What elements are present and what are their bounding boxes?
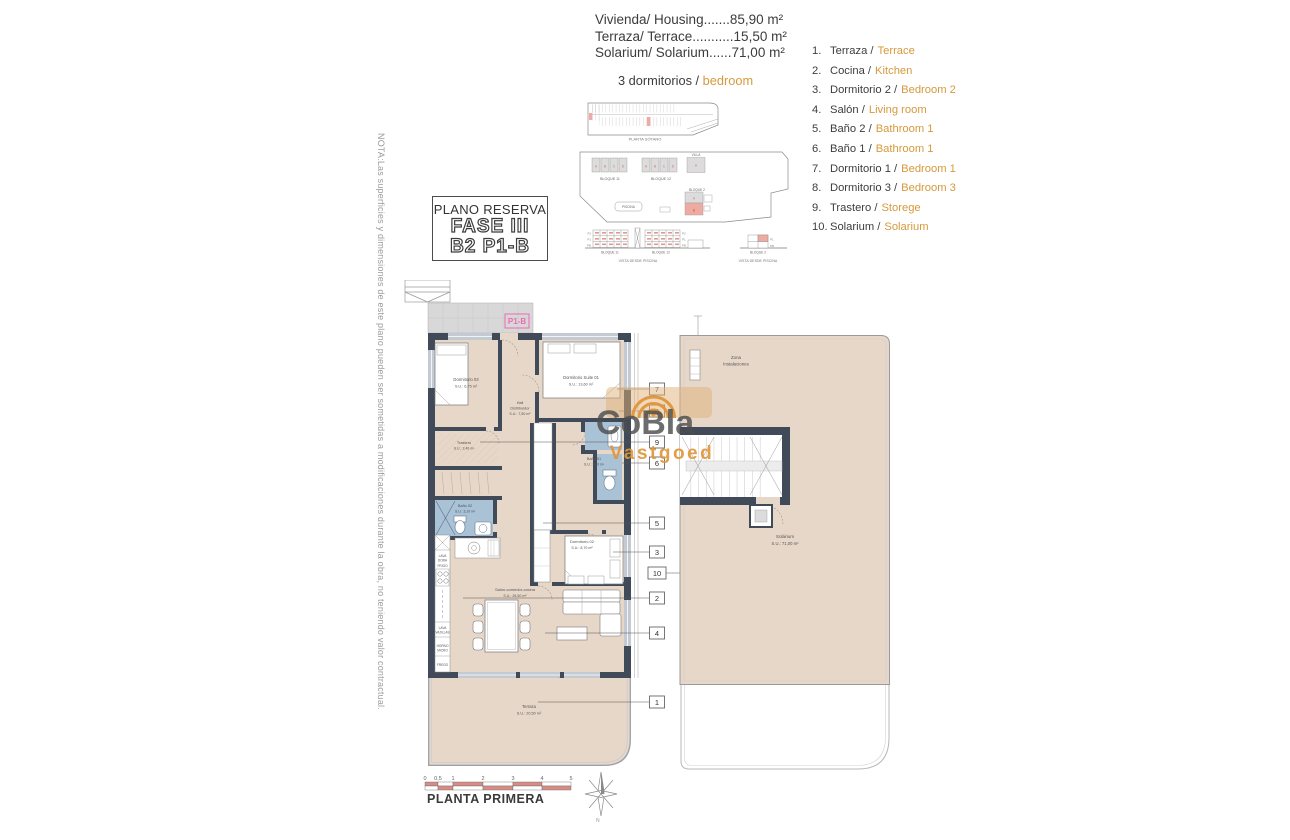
room-dormitorio-02: Dormitorio 02 S.U.: 8,70 m² [565, 536, 623, 584]
kitchen-label: MICRO [437, 649, 448, 653]
stair-core [534, 423, 552, 582]
bedrooms-line: 3 dormitorios / bedroom [618, 73, 753, 88]
area-line-terraza: Terraza/ Terrace...........15,50 m² [595, 29, 787, 46]
floor-label: PB [682, 244, 686, 248]
bloque11-elevation [593, 230, 628, 248]
callout-10: 10 [653, 569, 661, 578]
dorm2-area: S.U.: 8,70 m² [571, 546, 593, 550]
bloque2-elevation: P1 PB BLOQUE 2 VISTA DESDE PISCINA [739, 235, 787, 263]
main-floorplan: P1-B [398, 280, 898, 780]
kitchen-label: HORNO [437, 644, 449, 648]
bloque12-label: BLOQUE 12 [651, 177, 671, 181]
site-diagrams: PLANTA SÓTANO A B C D BLOQUE 11 A [575, 92, 795, 272]
bloque2-label: BLOQUE 2 [689, 188, 705, 192]
bloque12-elevation [645, 230, 680, 248]
solarium-plan: Zona Instalaciones [680, 316, 890, 769]
compass-north-label: N [596, 818, 600, 824]
vista-caption: VISTA DESDE PISCINA [619, 259, 658, 263]
hall-line1: Hall [517, 401, 524, 405]
scale-tick: 0,5 [434, 776, 442, 782]
stair-outline [405, 280, 450, 302]
solarium-area: S.U.: 71,00 m² [772, 541, 800, 546]
callout-3: 3 [655, 548, 659, 557]
floor-label: P1 [770, 238, 774, 242]
villa-label: VILLA [692, 153, 702, 157]
floor-label: PB [587, 244, 591, 248]
piscina-label: PISCINA [622, 205, 636, 209]
scale-tick: 1 [451, 776, 454, 782]
watermark-brand: CoBla [585, 404, 705, 443]
lower-terrace-outline [681, 685, 889, 769]
callout-4: 4 [655, 629, 659, 638]
callout-5: 5 [655, 519, 659, 528]
scale-tick: 2 [481, 776, 484, 782]
floor-label: P1 [682, 238, 686, 242]
floor-label: PB [770, 244, 774, 248]
vista-caption: VISTA DESDE PISCINA [739, 259, 778, 263]
bloque11-caption: BLOQUE 11 [601, 251, 619, 255]
floor-label: P2 [682, 232, 686, 236]
facade-lines [635, 333, 639, 678]
room-bano-02: Baño 02 S.U.: 3,10 m² [435, 500, 493, 536]
suite-area: S.U.: 13,60 m² [569, 383, 594, 387]
plan-phase: FASE III [433, 217, 547, 237]
scale-tick: 5 [569, 776, 572, 782]
bloque12-caption: BLOQUE 12 [652, 251, 670, 255]
bano2-area: S.U.: 3,10 m² [455, 510, 476, 514]
bedrooms-en: bedroom [703, 73, 754, 88]
disclaimer-note: NOTA:Las superficies y dimensiones de es… [376, 133, 386, 710]
watermark-sub: Vastgoed [592, 443, 732, 465]
floor-plan-sheet: Vivienda/ Housing.......85,90 m² Terraza… [0, 0, 1290, 840]
title-block: PLANO RESERVA FASE III B2 P1-B [432, 196, 548, 261]
compass-rose: N [581, 770, 623, 824]
area-line-vivienda: Vivienda/ Housing.......85,90 m² [595, 12, 787, 29]
zona-line1: Zona [731, 355, 742, 360]
dorm2-name: Dormitorio 02 [570, 539, 595, 544]
legend-item-7: 7.Dormitorio 1 /Bedroom 1 [812, 164, 1022, 175]
plan-unit: B2 P1-B [433, 237, 547, 257]
kitchen-label: FRIGO [437, 564, 448, 568]
elevation-diagrams: P2 P1 PB P2 P1 PB BLOQUE 11 BLOQUE 12 VI… [585, 228, 787, 263]
terraza-name: Terraza [522, 704, 537, 709]
area-summary: Vivienda/ Housing.......85,90 m² Terraza… [595, 12, 787, 62]
kitchen-label: FREGO [437, 663, 449, 667]
legend-item-4: 4.Salón /Living room [812, 105, 1022, 116]
room-legend: 1.Terraza /Terrace 2.Cocina /Kitchen 3.D… [812, 46, 1022, 242]
salon-area: S.U.: 26,50 m² [503, 594, 527, 598]
basement-caption: PLANTA SÓTANO [629, 137, 662, 142]
legend-item-9: 9.Trastero /Storege [812, 203, 1022, 214]
siteplan-diagram: A B C D BLOQUE 11 A B C D BLOQUE 12 VILL… [580, 152, 788, 222]
legend-item-5: 5.Baño 2 /Bathroom 1 [812, 124, 1022, 135]
callout-2: 2 [655, 594, 659, 603]
kitchen-label: LAVA [439, 554, 448, 558]
salon-name: Salón-comedor-cocina [495, 587, 536, 592]
trastero-name: Trastero [457, 440, 471, 445]
hall-area: S.U.: 7,50 m² [509, 412, 531, 416]
kitchen-label: LAVA [439, 626, 448, 630]
bano2-name: Baño 02 [458, 504, 472, 508]
zona-line2: Instalaciones [723, 362, 749, 367]
kitchen-label: VAJILLAS [435, 631, 449, 635]
floor-label: P2 [587, 232, 591, 236]
unit-letter: B [693, 209, 695, 213]
legend-item-3: 3.Dormitorio 2 /Bedroom 2 [812, 85, 1022, 96]
legend-item-8: 8.Dormitorio 3 /Bedroom 3 [812, 183, 1022, 194]
plan-caption: PLANTA PRIMERA [427, 792, 544, 806]
room-terraza: Terraza S.U.: 20,50 m² [428, 678, 631, 766]
terraza-area: S.U.: 20,50 m² [517, 712, 542, 716]
dorm3-name: Dormitorio 03 [453, 377, 479, 382]
solarium-name: Solárium [776, 534, 794, 539]
scale-tick: 4 [540, 776, 543, 782]
access-corridor: P1-B [428, 303, 533, 333]
basement-diagram: PLANTA SÓTANO [588, 103, 718, 142]
callout-1: 1 [655, 698, 659, 707]
bedrooms-es: 3 dormitorios / [618, 73, 699, 88]
hall-line2: Distribuidor [510, 407, 530, 411]
dorm3-area: S.U.: 6,75 m² [455, 385, 478, 389]
plan-title: PLANO RESERVA [433, 202, 547, 217]
unit-tag: P1-B [508, 317, 526, 326]
scale-tick: 3 [511, 776, 514, 782]
area-line-solarium: Solarium/ Solarium......71,00 m² [595, 45, 787, 62]
suite-name: Dormitorio Suite 01 [563, 375, 600, 380]
legend-item-6: 6.Baño 1 /Bathroom 1 [812, 144, 1022, 155]
legend-item-2: 2.Cocina /Kitchen [812, 66, 1022, 77]
trastero-area: S.U.: 2,40 m² [454, 447, 475, 451]
bloque2-caption: BLOQUE 2 [750, 251, 766, 255]
legend-item-10: 10.Solarium /Solarium [812, 222, 1022, 233]
kitchen-label: DORA [438, 559, 448, 563]
bloque11-label: BLOQUE 11 [600, 177, 620, 181]
scale-tick: 0 [423, 776, 426, 782]
floor-label: P1 [587, 238, 591, 242]
legend-item-1: 1.Terraza /Terrace [812, 46, 1022, 57]
